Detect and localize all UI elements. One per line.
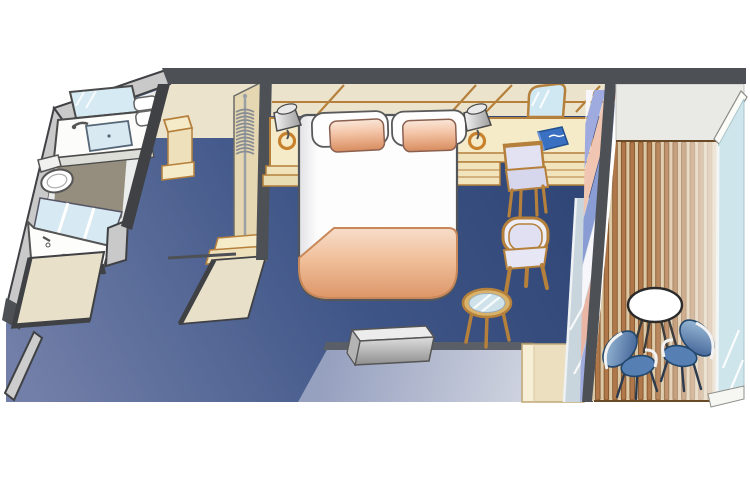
tv [347, 326, 434, 365]
queen-bed [299, 110, 466, 300]
blanket [299, 228, 457, 298]
sink-drain [107, 134, 110, 137]
desk-drawers-left [455, 162, 500, 185]
arched-mirror [528, 84, 565, 117]
glass-balustrade [717, 99, 744, 402]
pillow-peach-left [329, 119, 385, 153]
stateroom-floor-plan [0, 0, 750, 500]
balcony [592, 84, 747, 407]
top-wall [162, 68, 746, 84]
pillow-peach-right [402, 119, 456, 152]
lamp-base [470, 134, 485, 149]
floor-plan-drawing [0, 0, 750, 500]
lamp-base [280, 134, 295, 149]
